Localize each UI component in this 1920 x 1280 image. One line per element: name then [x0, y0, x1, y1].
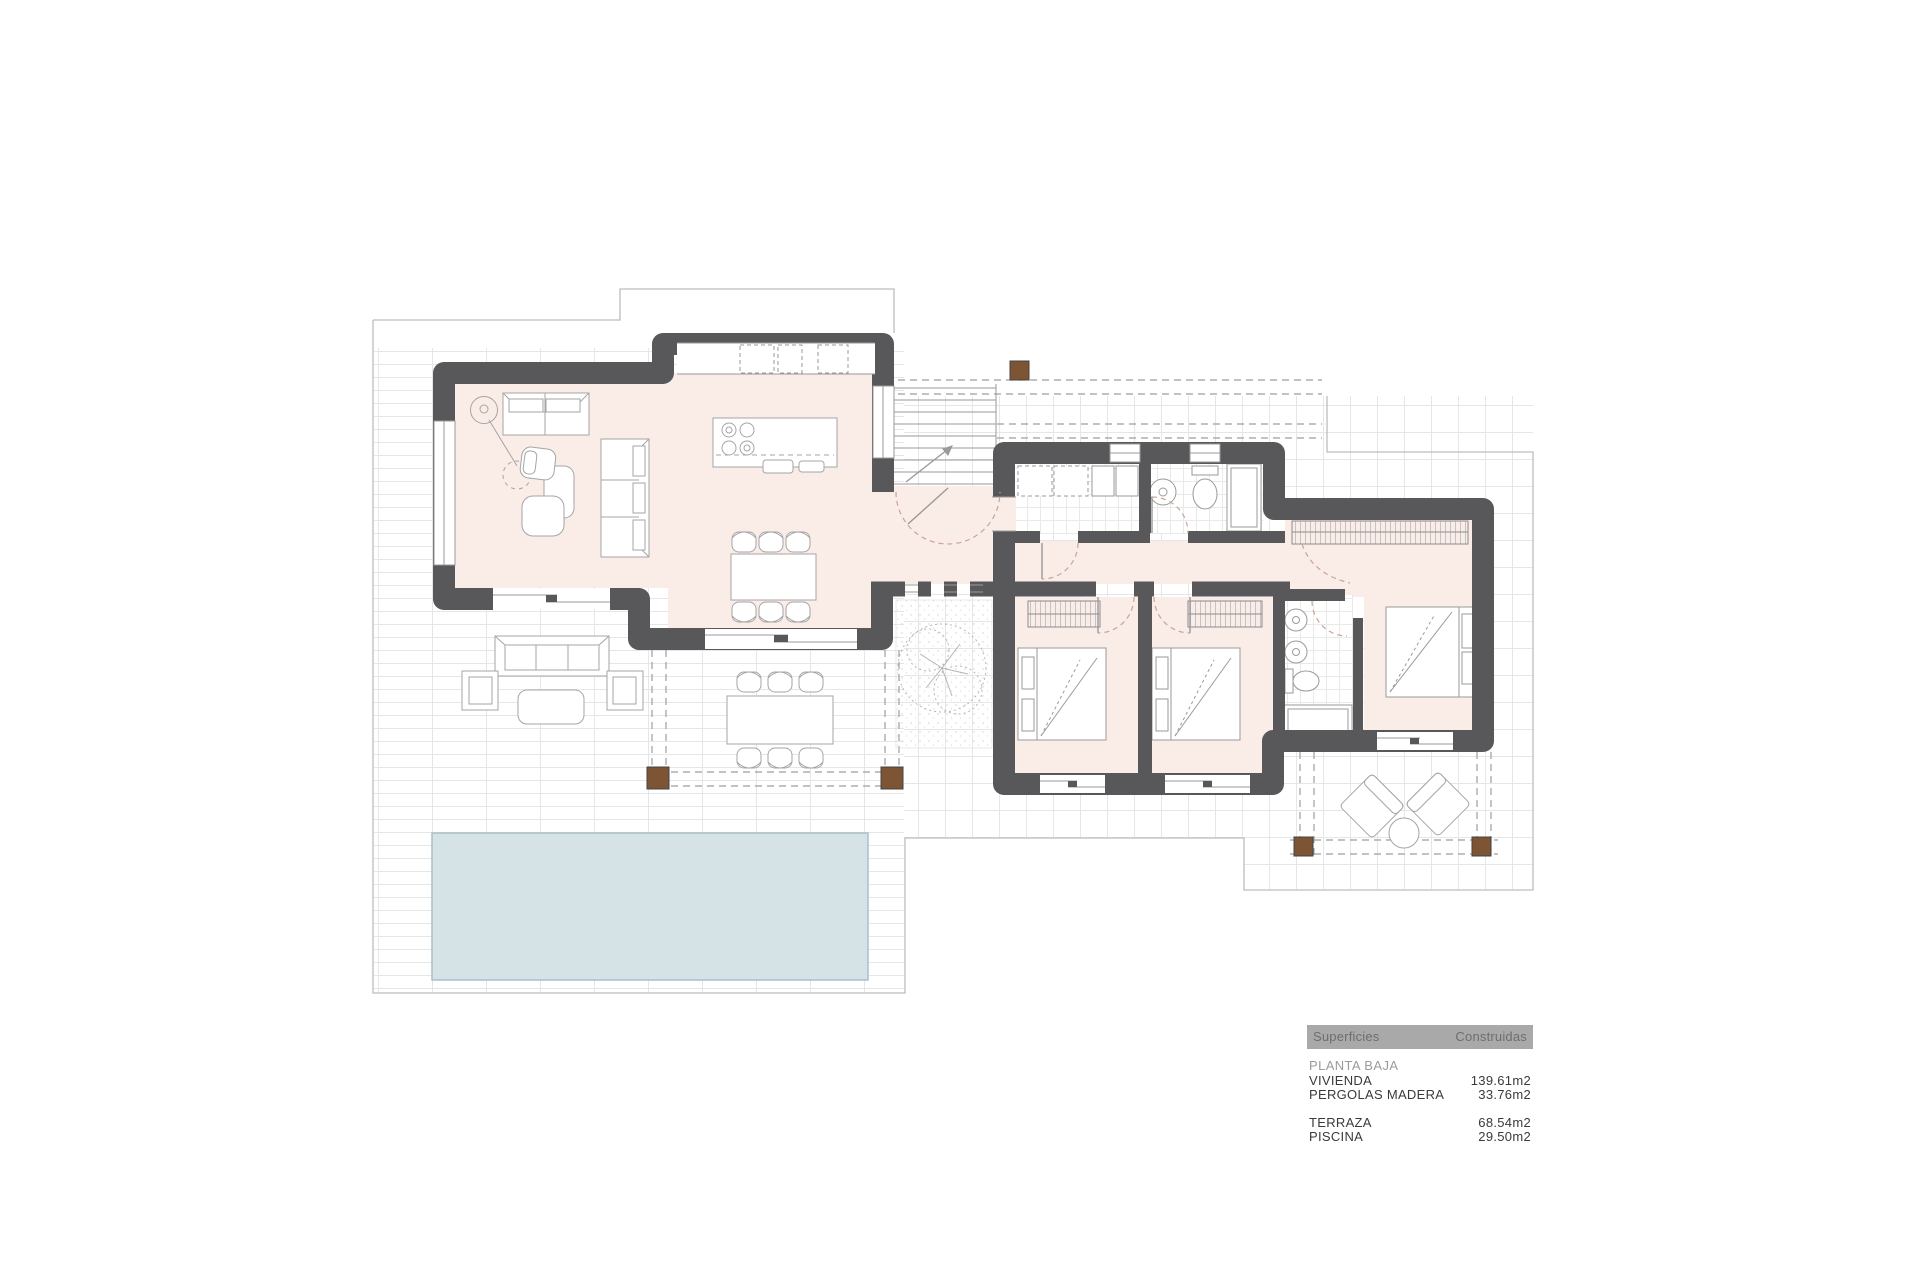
table-row: PERGOLAS MADERA 33.76m2	[1309, 1088, 1531, 1102]
area-label: VIVIENDA	[1309, 1074, 1372, 1088]
areas-section-title: PLANTA BAJA	[1309, 1058, 1531, 1073]
floor-plan-page: Superficies Construidas PLANTA BAJA VIVI…	[0, 0, 1920, 1280]
areas-table: Superficies Construidas PLANTA BAJA VIVI…	[1307, 1025, 1533, 1144]
outdoor-dining-set	[727, 672, 833, 768]
area-value: 68.54m2	[1478, 1116, 1531, 1130]
toilet	[1193, 479, 1217, 509]
dryer	[1116, 466, 1138, 496]
utility-counter	[1018, 466, 1052, 496]
area-value: 29.50m2	[1478, 1130, 1531, 1144]
entrance-hall-floor	[870, 486, 1002, 584]
area-value: 33.76m2	[1478, 1088, 1531, 1102]
sliding-door	[1377, 732, 1453, 750]
entrance-steps	[893, 384, 996, 488]
dining-table	[731, 554, 816, 600]
pergola-post	[647, 767, 669, 789]
pergola-post	[1294, 837, 1313, 856]
toilet-tank	[1285, 669, 1293, 693]
upper-cabinet	[818, 345, 848, 373]
pergola-post	[1010, 361, 1029, 380]
upper-cabinet	[740, 345, 774, 373]
utility-counter	[1054, 466, 1088, 496]
bed	[1018, 648, 1106, 740]
passage	[992, 497, 1016, 531]
sliding-door	[1165, 775, 1250, 793]
dining-set	[731, 532, 816, 622]
shower-tray	[1227, 464, 1261, 531]
sofa	[503, 393, 589, 435]
areas-header-left: Superficies	[1313, 1029, 1380, 1044]
swimming-pool	[432, 833, 868, 980]
sliding-door	[705, 629, 857, 649]
sliding-door	[493, 589, 610, 609]
toilet-tank	[1192, 466, 1218, 475]
area-label: TERRAZA	[1309, 1116, 1372, 1130]
kitchen-counter	[677, 343, 875, 374]
pergola-post	[1472, 837, 1491, 856]
area-label: PISCINA	[1309, 1130, 1363, 1144]
outdoor-dining-table	[727, 696, 833, 744]
coffee-table	[518, 690, 584, 724]
areas-header-right: Construidas	[1455, 1029, 1527, 1044]
bar-stool	[799, 461, 824, 472]
kitchen-island	[713, 418, 837, 473]
area-label: PERGOLAS MADERA	[1309, 1088, 1444, 1102]
armchair	[522, 496, 564, 536]
table-row: TERRAZA 68.54m2	[1309, 1116, 1531, 1130]
sliding-door	[1040, 775, 1105, 793]
floor-plan-drawing	[0, 0, 1920, 1280]
side-table	[1389, 818, 1419, 848]
sofa	[601, 439, 649, 557]
table-row: VIVIENDA 139.61m2	[1309, 1074, 1531, 1088]
table-row: PISCINA 29.50m2	[1309, 1130, 1531, 1144]
washer	[1092, 466, 1114, 496]
bed-master	[1386, 607, 1478, 697]
area-value: 139.61m2	[1471, 1074, 1531, 1088]
pergola-post	[881, 767, 903, 789]
toilet	[1293, 671, 1319, 691]
courtyard	[896, 600, 992, 748]
bar-stool	[763, 460, 793, 473]
bed	[1152, 648, 1240, 740]
upper-cabinet	[778, 345, 802, 373]
areas-table-header: Superficies Construidas	[1307, 1025, 1533, 1049]
